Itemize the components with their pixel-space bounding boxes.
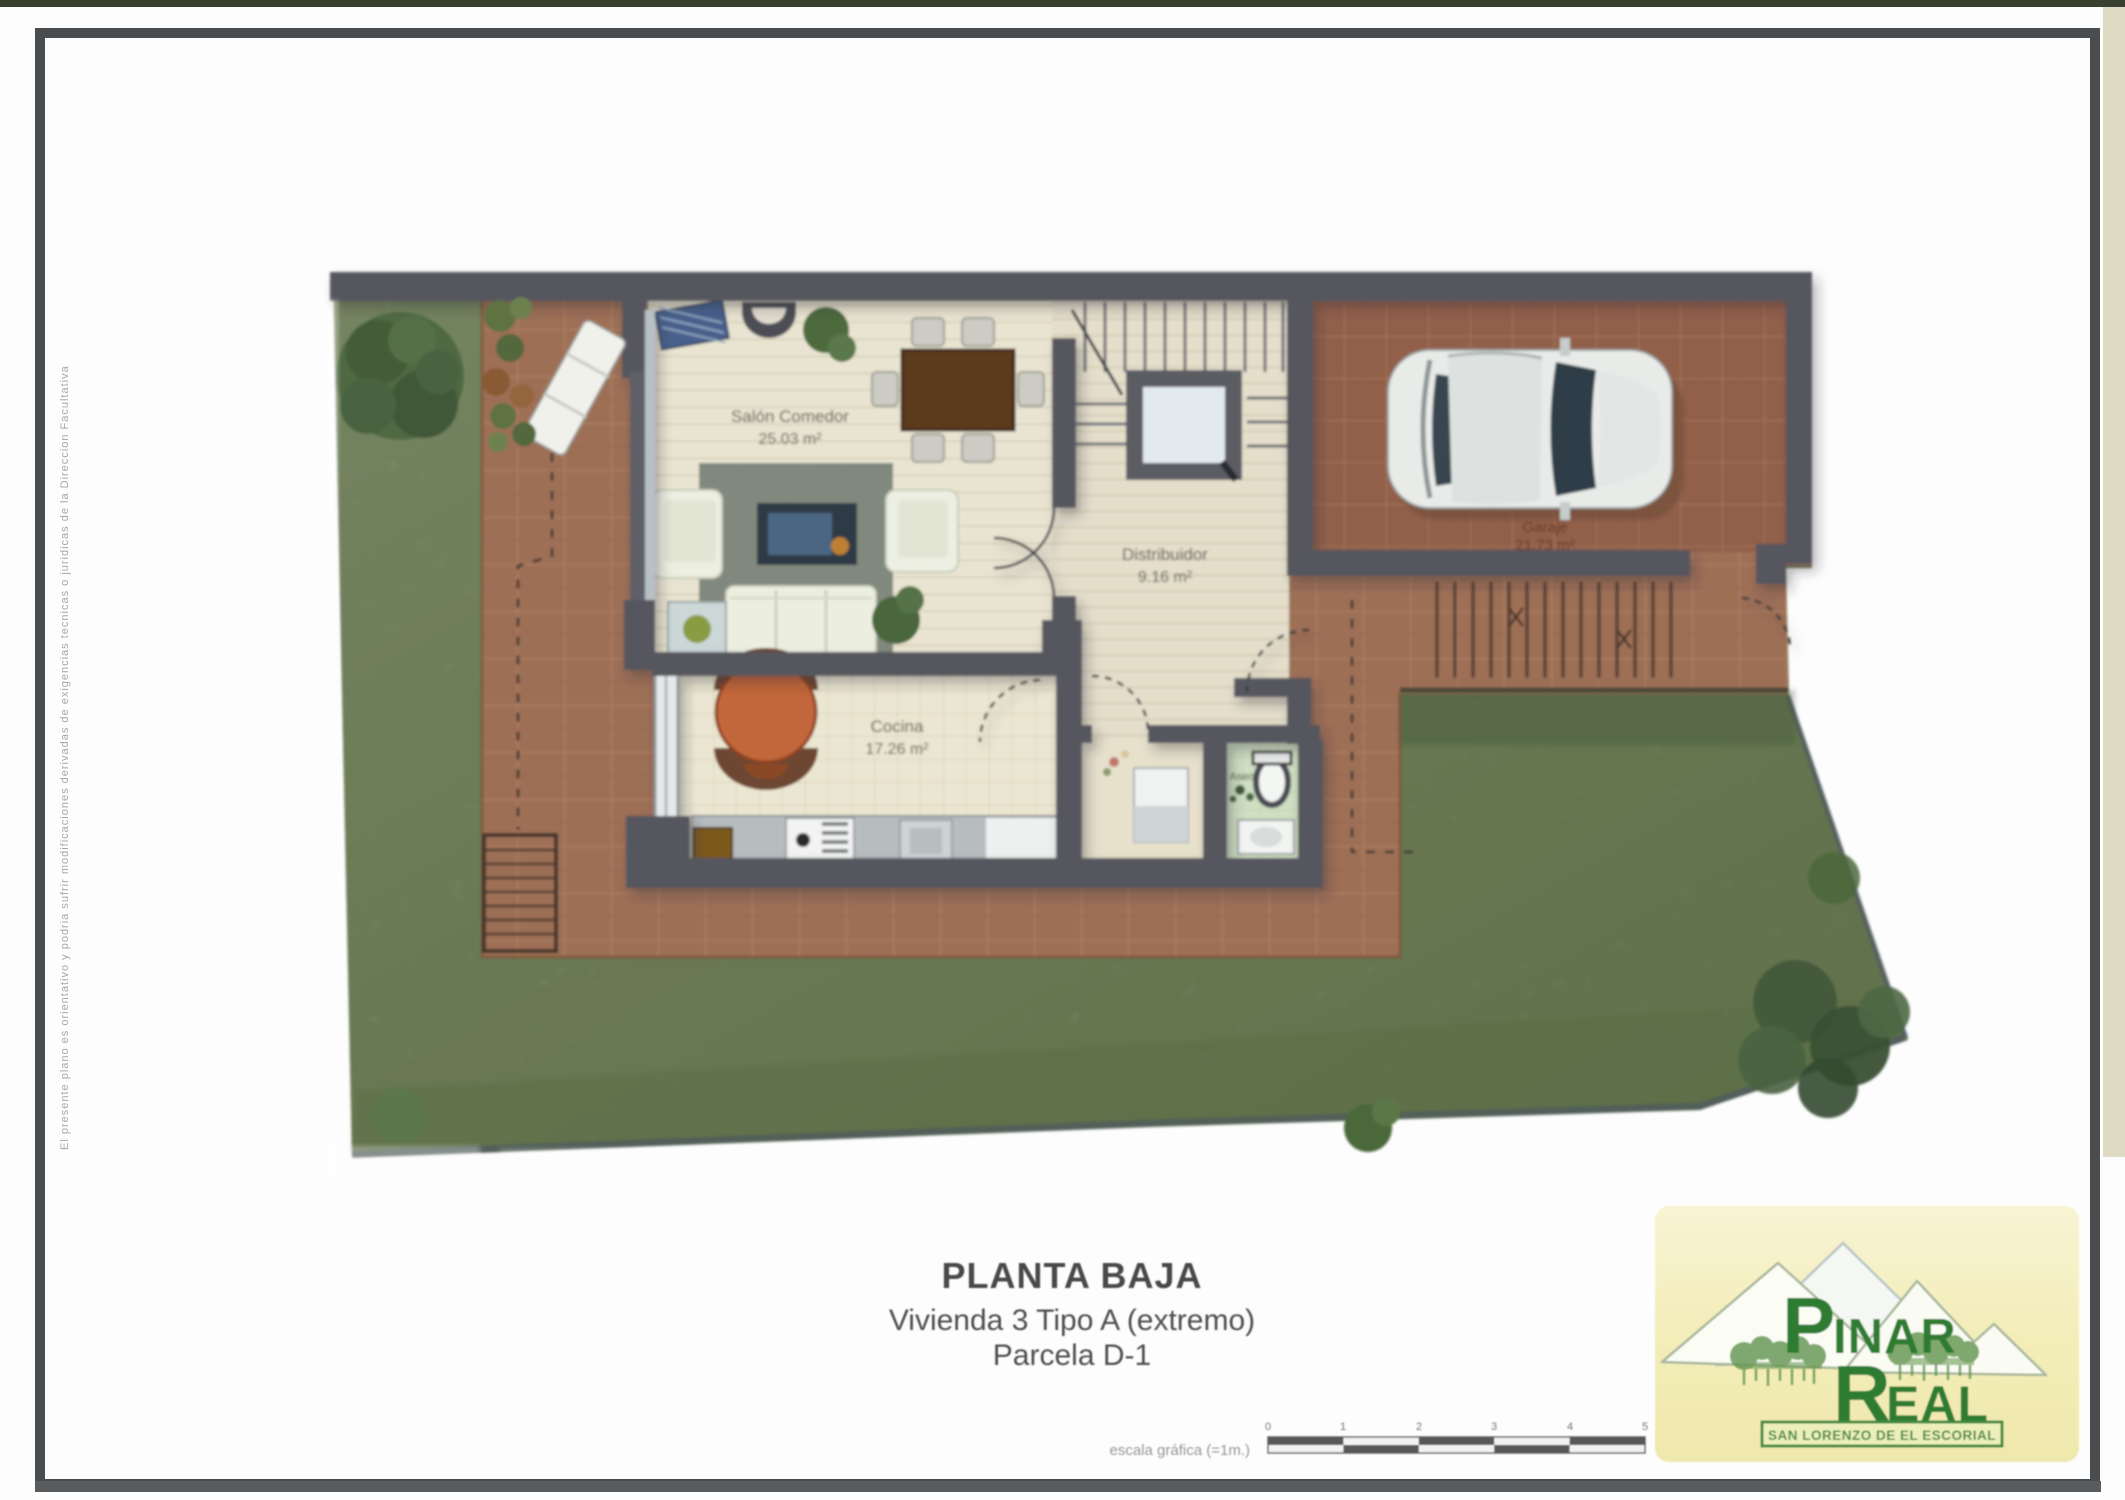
svg-text:Garaje: Garaje [1522,519,1567,536]
svg-text:escala gráfica (=1m.): escala gráfica (=1m.) [1110,1442,1250,1459]
svg-text:P: P [1782,1281,1835,1370]
svg-text:9.16 m²: 9.16 m² [1138,569,1193,586]
svg-text:Parcela D-1: Parcela D-1 [993,1339,1151,1372]
svg-text:SAN LORENZO DE EL ESCORIAL: SAN LORENZO DE EL ESCORIAL [1768,1428,1996,1443]
svg-text:El presente plano es orientati: El presente plano es orientativo y podri… [59,365,71,1150]
svg-text:25.03 m²: 25.03 m² [758,431,822,448]
svg-text:1: 1 [1340,1421,1346,1433]
svg-text:PLANTA BAJA: PLANTA BAJA [942,1255,1203,1296]
svg-text:Vivienda 3 Tipo A (extremo): Vivienda 3 Tipo A (extremo) [889,1304,1255,1337]
svg-text:2: 2 [1416,1421,1422,1433]
svg-text:Distribuidor: Distribuidor [1122,545,1208,564]
svg-text:4: 4 [1567,1421,1573,1433]
svg-text:17.26 m²: 17.26 m² [865,741,929,758]
svg-text:Salón Comedor: Salón Comedor [731,407,849,426]
svg-text:0: 0 [1265,1421,1271,1433]
svg-text:Cocina: Cocina [871,717,924,736]
svg-text:5: 5 [1642,1421,1648,1433]
svg-text:3: 3 [1491,1421,1497,1433]
svg-text:Aseo: Aseo [1229,771,1254,783]
